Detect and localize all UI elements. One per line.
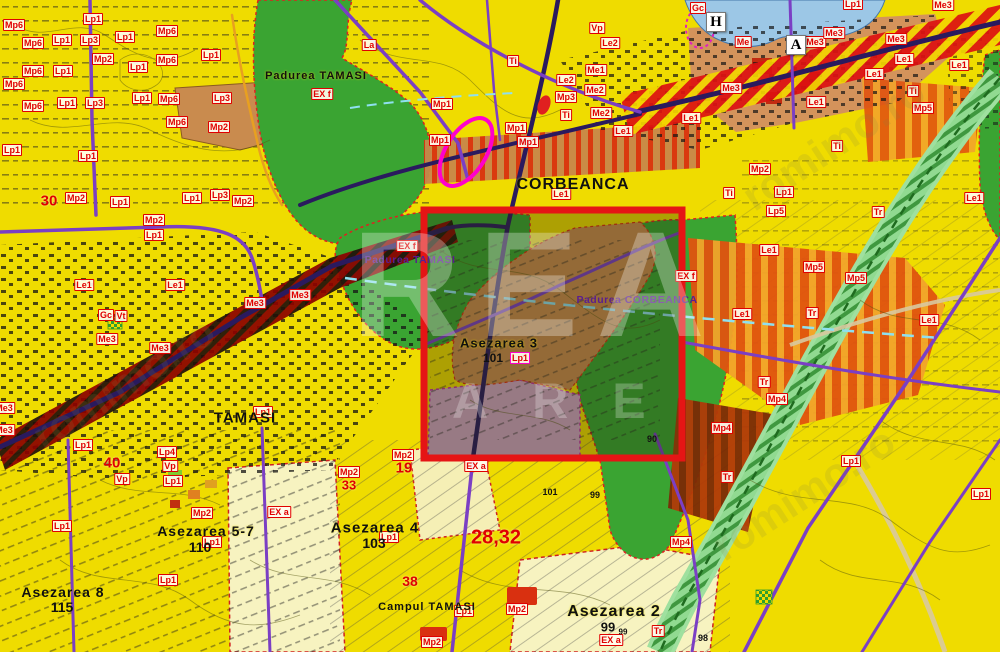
zone-label: Lp1 [971,488,991,500]
zone-label: Mp4 [670,536,692,548]
zone-label: Mp6 [156,54,178,66]
zone-label: Lp1 [841,455,861,467]
place-label: Padurea TAMASI [265,70,367,82]
zone-label: Lp1 [2,144,22,156]
zone-label: Lp1 [158,574,178,586]
zone-label: Le1 [964,192,984,204]
zone-label: Tr [872,206,885,218]
zone-label: Lp1 [201,49,221,61]
zone-label: Mp6 [3,78,25,90]
zone-label: Le1 [894,53,914,65]
place-label: Asezarea 8 [21,584,104,600]
zone-label: Mp6 [156,25,178,37]
forest-label: Padurea CORBEANCA [576,294,697,306]
zone-label: Lp3 [80,34,100,46]
map-labels-layer: Mp6Mp6Mp6Mp6Mp6Mp6Mp6Mp6Mp6Lp1Lp1Lp1Lp1L… [0,0,1000,652]
place-label: Asezarea 3 [460,336,538,351]
black-number: 98 [698,633,708,643]
zone-label: Me2 [584,84,606,96]
zone-label: Mp6 [166,116,188,128]
zone-label: Le1 [864,68,884,80]
red-number: 19 [396,460,413,477]
zone-label: Le2 [556,74,576,86]
red-number: 28,32 [471,527,521,550]
zone-label: Mp6 [3,19,25,31]
zone-label: Me3 [823,27,845,39]
zone-label: Vt [115,310,128,322]
black-number: 103 [362,535,385,551]
zone-label: Le1 [732,308,752,320]
zone-label: Mp1 [517,136,539,148]
letter-marker: A [786,35,806,55]
zone-label: Le1 [681,112,701,124]
zone-label: Lp1 [132,92,152,104]
zone-label: Me3 [0,424,15,436]
zone-label: Lp4 [157,446,177,458]
zone-label: Vp [162,460,178,472]
zone-label: Tr [758,376,771,388]
zone-label: Mp2 [208,121,230,133]
zone-label: EX f [311,88,333,100]
zone-label: EX f [675,270,697,282]
zone-label: Lp3 [212,92,232,104]
red-number: 38 [402,573,418,589]
zone-label: Me3 [885,33,907,45]
black-number: 101 [542,487,557,497]
place-label: Asezarea 5-7 [157,523,255,539]
zone-label: Lp1 [73,439,93,451]
zone-label: Lp1 [78,150,98,162]
zone-label: Le1 [613,125,633,137]
zone-label: EX a [267,506,291,518]
zone-label: Ti [907,85,919,97]
black-number: 101 [483,351,503,365]
place-label: Campul TAMASI [378,601,476,613]
red-number: 40 [104,455,121,472]
zone-label: Le1 [165,279,185,291]
zone-label: Lp1 [110,196,130,208]
zone-label: Le1 [806,96,826,108]
zone-label: Lp3 [210,189,230,201]
zone-label: Mp4 [766,393,788,405]
zone-label: Mp2 [506,603,528,615]
zone-label: Lp1 [57,97,77,109]
zone-label: Vp [589,22,605,34]
black-number: 90 [647,434,657,444]
red-number: 33 [342,478,356,493]
zone-label: Mp6 [22,100,44,112]
place-label: Asezarea 4 [331,520,419,537]
zone-label: Lp1 [52,34,72,46]
zone-label: EX a [464,460,488,472]
letter-marker: H [706,12,726,32]
zone-label: Me3 [932,0,954,11]
zone-label: Lp1 [52,520,72,532]
zone-label: Lp5 [766,205,786,217]
zone-label: Mp2 [232,195,254,207]
black-number: 110 [189,539,212,555]
place-label: TAMASI [214,410,276,427]
zone-label: Lp1 [83,13,103,25]
zone-label-magenta: Lp1 [510,352,530,364]
zone-label: Lp1 [144,229,164,241]
black-number: 99 [590,490,600,500]
zone-label: Ti [507,55,519,67]
zone-label: Lp1 [774,186,794,198]
zone-label: Mp6 [158,93,180,105]
zone-label: Mp6 [22,37,44,49]
zone-label: Mp2 [92,53,114,65]
zone-label: Mp4 [711,422,733,434]
zone-label: Mp5 [803,261,825,273]
zone-label: Mp2 [65,192,87,204]
zone-label: Vp [114,473,130,485]
zone-label: Ti [723,187,735,199]
black-number: 99 [601,620,615,635]
map-canvas[interactable]: Mp6Mp6Mp6Mp6Mp6Mp6Mp6Mp6Mp6Lp1Lp1Lp1Lp1L… [0,0,1000,652]
place-label: CORBEANCA [517,176,630,194]
zone-label: Mp6 [22,65,44,77]
zone-label: Mp1 [429,134,451,146]
zone-label: Lp1 [128,61,148,73]
zone-label: Le2 [600,37,620,49]
zone-label: Mp2 [143,214,165,226]
zone-label: Le1 [74,279,94,291]
zone-label: Me3 [0,402,15,414]
forest-label: Padurea TAMASI [365,254,456,266]
zone-label: Lp1 [163,475,183,487]
zone-label: Me3 [244,297,266,309]
zone-label: Me3 [149,342,171,354]
black-number: 115 [51,599,74,615]
zone-label: Le1 [759,244,779,256]
zone-label: Lp1 [182,192,202,204]
zone-label: Me2 [590,107,612,119]
zone-label: Tr [721,471,734,483]
zone-label: Tr [652,625,665,637]
zone-label: Mp5 [845,272,867,284]
zone-label: Mp2 [749,163,771,175]
red-number: 30 [41,193,58,210]
zone-label: Me3 [289,289,311,301]
zone-label: EX f [396,240,418,252]
zone-label: Lp1 [53,65,73,77]
black-number: 99 [619,628,628,637]
zone-label: Mp1 [431,98,453,110]
zone-label: Mp2 [191,507,213,519]
zone-label: Me [735,36,752,48]
zone-label: Me1 [585,64,607,76]
zone-label: Tr [806,307,819,319]
zone-label: Mp2 [338,466,360,478]
zone-label: Me3 [720,82,742,94]
zone-label: Ti [560,109,572,121]
zone-label: Le1 [919,314,939,326]
zone-label: Gc [98,309,114,321]
zone-label: Me3 [96,333,118,345]
zone-label: La [362,39,377,51]
zone-label: Mp5 [912,102,934,114]
place-label: Asezarea 2 [567,603,661,621]
zone-label: Lp3 [85,97,105,109]
zone-label: Ti [831,140,843,152]
zone-label: Le1 [949,59,969,71]
zone-label: Lp1 [115,31,135,43]
zone-label: Mp3 [555,91,577,103]
zone-label: Mp1 [505,122,527,134]
zone-label: Lp1 [843,0,863,10]
zone-label: Mp2 [421,636,443,648]
zone-label: Gc [690,2,706,14]
